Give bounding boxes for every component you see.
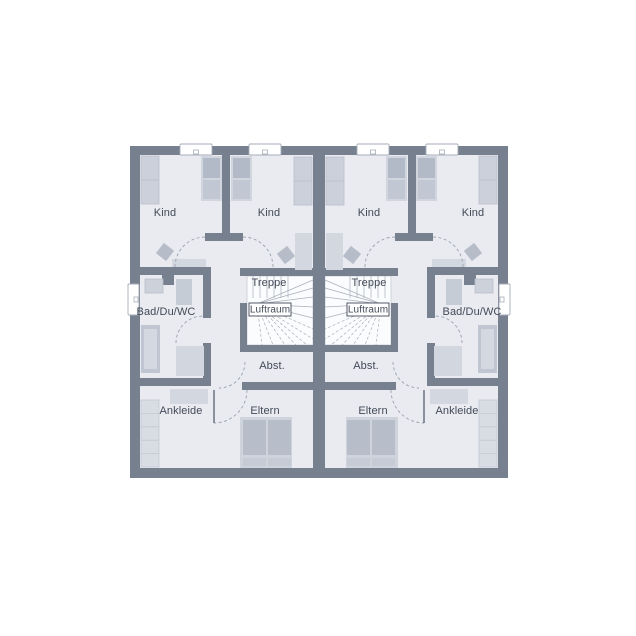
wall-bath-right-a-right [427,275,435,318]
window-kind-right-left [249,144,281,155]
desk-kind-right-right [326,233,343,270]
bed-eltern-mattress-l-left [243,420,266,455]
wall-party-right [313,146,325,478]
wardrobe-ankleide-left [141,400,159,467]
bed-eltern-pillow-l-left [243,458,266,466]
wall-kind-divider-right [408,155,416,241]
window-bath-left [128,284,139,315]
washbasin-left [145,279,163,293]
bed-kind-right-mattress-left [233,180,250,199]
wall-bath-bottom-right [427,378,508,386]
wall-abst-bottom-right [325,382,396,390]
wall-kind-bottom-right [427,267,498,275]
wall-stair-bottom-right [325,345,398,352]
bed-kind-left-mattress-right [418,180,435,199]
bed-eltern-mattress-l-right [372,420,395,455]
unit-left [128,144,325,478]
bathtub-inner-right [481,329,494,369]
wardrobe-ankleide-right [479,400,497,467]
window-kind-right-right [357,144,389,155]
wall-top-right [313,146,508,155]
bed-eltern-mattress-r-left [268,420,291,455]
window-kind-left-right [426,144,458,155]
floor-plan-drawing [130,146,508,478]
bath-cabinet-left [176,279,192,305]
bed-kind-left-pillow-right [418,158,435,178]
window-bath-right [499,284,510,315]
page: { "title": "Obergeschoss Grundriss Doppe… [0,0,636,636]
wc-right [434,346,462,376]
sideboard-ankleide-left [170,389,208,404]
washbasin-right [475,279,493,293]
bath-cabinet-right [446,279,462,305]
window-kind-left-left [180,144,212,155]
bed-eltern-mattress-r-right [347,420,370,455]
desk-kind-right-left [295,233,312,270]
bed-eltern-pillow-r-left [268,458,291,466]
desk-kind-left-right [432,259,466,267]
wall-top-left [130,146,325,155]
desk-kind-left-left [172,259,206,267]
bed-eltern-pillow-l-right [372,458,395,466]
wall-abst-bottom-left [242,382,313,390]
bed-kind-left-mattress-left [203,180,220,199]
bed-kind-right-mattress-right [388,180,405,199]
luftraum-box-left [249,303,291,316]
wall-bath-right-a-left [203,275,211,318]
wall-bottom-left [130,468,325,478]
wall-hall-stub-right [395,233,433,241]
wall-hall-stub-left [205,233,243,241]
wc-left [176,346,204,376]
wall-kind-divider-left [222,155,230,241]
wall-bath-nib-left [162,275,174,285]
bed-kind-left-pillow-left [203,158,220,178]
unit-right [313,144,510,478]
bed-kind-right-pillow-left [233,158,250,178]
wall-bath-bottom-left [130,378,211,386]
wall-bottom-right [313,468,508,478]
sideboard-ankleide-right [430,389,468,404]
floor-plan: KindKindKindKindTreppeTreppeLuftraumLuft… [130,146,508,478]
wall-kind-bottom-left [140,267,211,275]
luftraum-box-right [347,303,389,316]
wall-stair-left-left [240,303,247,352]
bed-kind-right-pillow-right [388,158,405,178]
bed-eltern-pillow-r-right [347,458,370,466]
bathtub-inner-left [144,329,157,369]
wall-stair-left-right [391,303,398,352]
wall-bath-nib-right [464,275,476,285]
wall-stair-bottom-left [240,345,313,352]
